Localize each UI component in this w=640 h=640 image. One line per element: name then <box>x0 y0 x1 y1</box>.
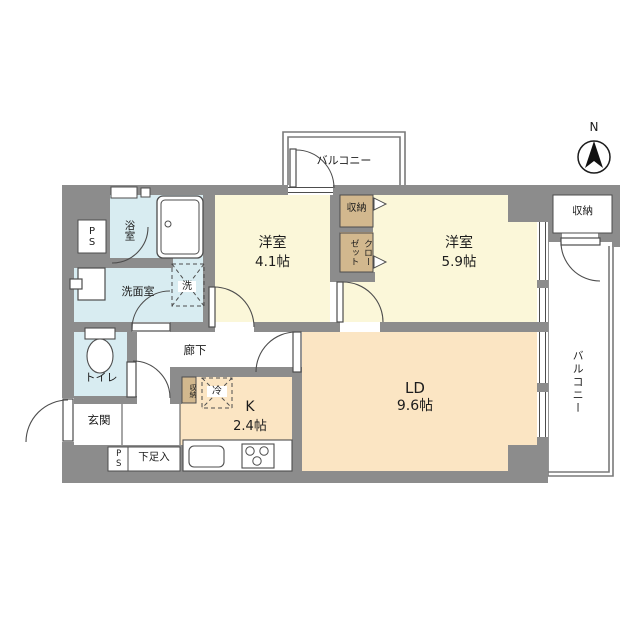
wall-room2-bottom <box>380 322 548 332</box>
fridge-label: 冷 <box>207 386 227 397</box>
window-room2-b <box>537 288 548 322</box>
room2-name-label: 洋室 <box>380 236 538 251</box>
wall-pillar-bottom-right <box>508 445 548 483</box>
wall-washroom-bottom-e <box>170 322 212 332</box>
kitchen-sink <box>189 446 224 467</box>
balcony-right-label: バルコニー <box>571 322 583 442</box>
storage-mid-label: 収納 <box>339 203 374 214</box>
toilet-tank <box>85 328 115 339</box>
ld-size-label: 9.6帖 <box>330 399 500 414</box>
shoe-cabinet-label: 下足入 <box>128 452 180 464</box>
wall-left-upper <box>62 185 74 398</box>
toilet-label: トイレ <box>74 372 128 384</box>
bath-counter <box>111 187 137 198</box>
room2-door-leaf <box>337 282 343 322</box>
wall-toilet-right <box>127 332 137 362</box>
wall-corridor-top <box>254 322 340 332</box>
window-room2-a <box>537 222 548 280</box>
ps-top-label: PS <box>78 220 106 253</box>
storage-door-leaf <box>561 238 600 245</box>
genkan-label: 玄関 <box>74 414 124 427</box>
compass <box>578 141 610 173</box>
wall-kitchen-left <box>170 367 182 404</box>
kitchen-name-label: K <box>205 400 295 415</box>
bath-label: 浴室 <box>123 212 135 248</box>
entrance-door-arc <box>26 400 68 442</box>
bathtub <box>157 196 203 258</box>
storage-top-right-label: 収納 <box>553 206 612 218</box>
storage-kitchen-label: 収納 <box>182 379 196 402</box>
floor-plan: バルコニー バルコニー 洋室 4.1帖 洋室 5.9帖 LD 9.6帖 K 2.… <box>0 0 640 640</box>
wall-kitchen-top <box>170 367 302 377</box>
wall-storage-bottom-e <box>598 233 620 242</box>
ld-door-leaf <box>293 332 301 372</box>
wall-closet-divider <box>330 227 373 232</box>
wall-window-mullion2 <box>537 383 548 392</box>
floor-plan-drawing <box>0 0 640 640</box>
room1-name-label: 洋室 <box>215 236 330 251</box>
corridor-label: 廊下 <box>160 344 230 357</box>
toilet-door-arc <box>133 361 170 398</box>
ps-bottom-label: PS <box>108 447 128 471</box>
compass-north-label: N <box>586 121 602 134</box>
wall-closet-bottom <box>330 272 375 282</box>
wall-bath-divider <box>74 258 173 268</box>
room1-size-label: 4.1帖 <box>215 255 330 270</box>
closet-label: クローゼット <box>340 236 373 268</box>
washbasin-faucet <box>70 279 82 289</box>
wall-window-mullion1 <box>537 280 548 288</box>
toilet-door-leaf <box>127 362 136 397</box>
wall-closet-left <box>330 185 340 282</box>
window-ld-b <box>537 392 548 437</box>
kitchen-size-label: 2.4帖 <box>205 420 295 434</box>
washroom-door-opening <box>132 323 170 331</box>
room1-door-leaf <box>209 287 215 327</box>
washroom-label: 洗面室 <box>93 286 183 298</box>
ld-name-label: LD <box>330 380 500 397</box>
washer-label: 洗 <box>178 281 196 292</box>
storage-door-arc <box>561 242 600 281</box>
wall-pillar-top-right <box>508 185 545 222</box>
toilet-bowl <box>87 339 113 373</box>
window-ld-a <box>537 332 548 383</box>
room2-size-label: 5.9帖 <box>380 255 538 270</box>
bath-counter-2 <box>141 188 150 197</box>
entrance-door-leaf <box>63 399 73 441</box>
ld-door-arc <box>256 332 296 372</box>
balcony-top-label: バルコニー <box>288 155 400 167</box>
